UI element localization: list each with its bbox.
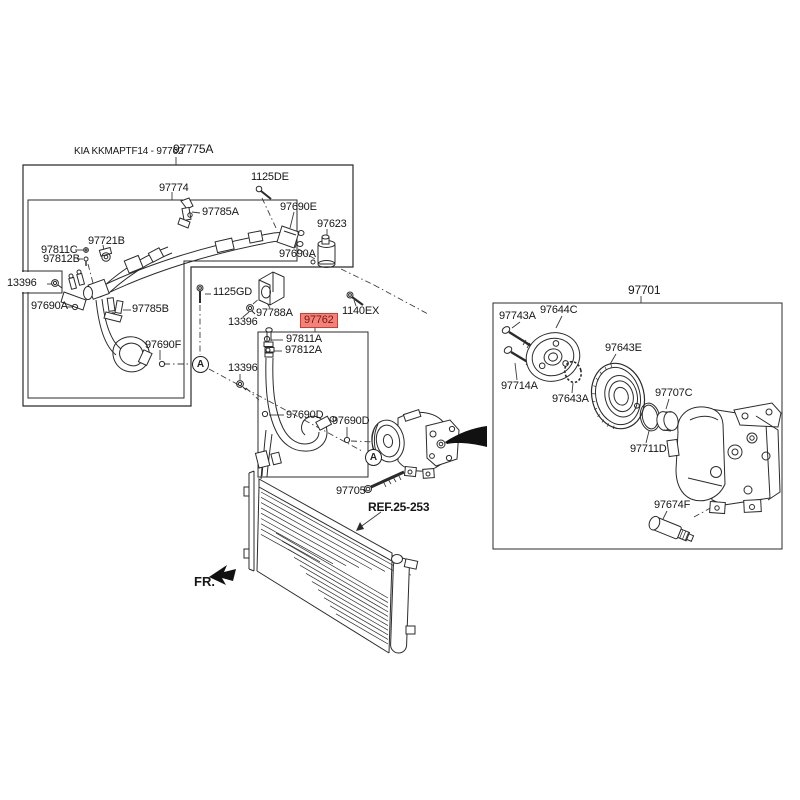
part-label-kia_note: KIA KKMAPTF14 - 97762 bbox=[74, 146, 183, 157]
part-label-13396_b[interactable]: 13396 bbox=[228, 316, 258, 328]
part-label-ref[interactable]: REF.25-253 bbox=[368, 501, 429, 514]
diagram-linework bbox=[0, 0, 800, 800]
part-label-97690F[interactable]: 97690F bbox=[145, 339, 181, 351]
part-label-97623[interactable]: 97623 bbox=[317, 218, 347, 230]
part-label-97690E[interactable]: 97690E bbox=[280, 201, 317, 213]
part-label-1125GD[interactable]: 1125GD bbox=[213, 286, 252, 298]
part-label-97644C[interactable]: 97644C bbox=[540, 304, 577, 316]
part-label-97643A[interactable]: 97643A bbox=[552, 393, 589, 405]
part-label-97643E[interactable]: 97643E bbox=[605, 342, 642, 354]
part-label-13396_c[interactable]: 13396 bbox=[228, 362, 258, 374]
part-label-97701[interactable]: 97701 bbox=[628, 284, 660, 297]
part-label-13396_a[interactable]: 13396 bbox=[7, 277, 37, 289]
part-label-97690A_a[interactable]: 97690A bbox=[31, 300, 68, 312]
compressor-kit-drawing bbox=[501, 325, 781, 545]
view-marker-amark1: A bbox=[192, 356, 209, 373]
dash-dot-lines bbox=[78, 198, 716, 517]
part-label-97690D_a[interactable]: 97690D bbox=[286, 409, 323, 421]
part-label-97690D_b[interactable]: 97690D bbox=[332, 415, 369, 427]
part-label-97674F[interactable]: 97674F bbox=[654, 499, 690, 511]
assembly-boxes bbox=[17, 165, 782, 549]
part-label-97721B[interactable]: 97721B bbox=[88, 235, 125, 247]
part-label-1140EX[interactable]: 1140EX bbox=[342, 305, 379, 317]
part-label-97690A_b[interactable]: 97690A bbox=[279, 248, 316, 260]
part-label-97775A[interactable]: 97775A bbox=[173, 143, 213, 156]
part-label-1125DE[interactable]: 1125DE bbox=[251, 171, 289, 183]
part-label-97785B[interactable]: 97785B bbox=[132, 303, 169, 315]
condenser-drawing bbox=[244, 451, 418, 653]
compressor-left-drawing bbox=[365, 410, 488, 493]
part-label-97707C[interactable]: 97707C bbox=[655, 387, 692, 399]
part-label-97711D[interactable]: 97711D bbox=[630, 443, 667, 455]
view-marker-amark2: A bbox=[365, 449, 382, 466]
part-label-97743A[interactable]: 97743A bbox=[499, 310, 536, 322]
part-label-97788A[interactable]: 97788A bbox=[256, 307, 293, 319]
part-label-97705[interactable]: 97705 bbox=[336, 485, 366, 497]
part-label-97812A[interactable]: 97812A bbox=[285, 344, 322, 356]
part-label-97762[interactable]: 97762 bbox=[300, 313, 338, 328]
part-label-fr: FR. bbox=[194, 575, 215, 589]
part-label-97812B[interactable]: 97812B bbox=[43, 253, 80, 265]
part-label-97785A[interactable]: 97785A bbox=[202, 206, 239, 218]
part-label-97714A[interactable]: 97714A bbox=[501, 380, 538, 392]
part-label-97774[interactable]: 97774 bbox=[159, 182, 189, 194]
parts-diagram-canvas: KIA KKMAPTF14 - 9776297775A977741125DE97… bbox=[0, 0, 800, 800]
